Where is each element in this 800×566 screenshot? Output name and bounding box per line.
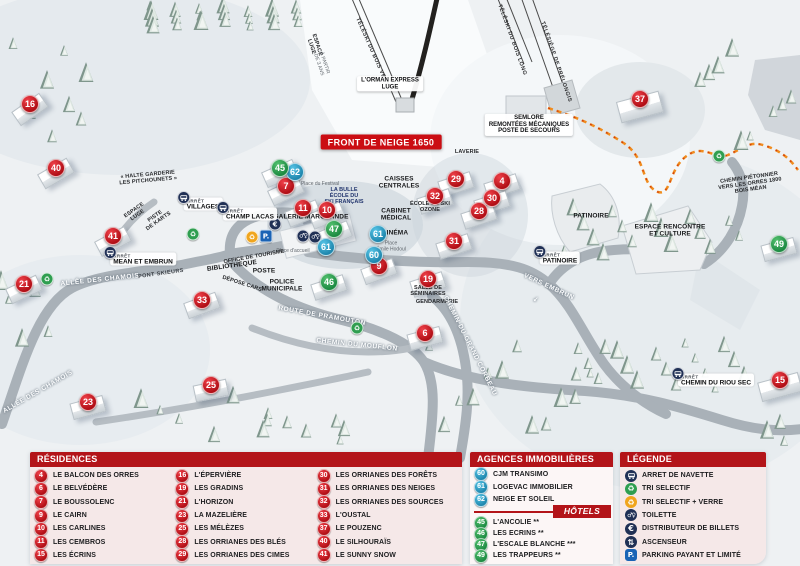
map-marker-49: 49 bbox=[770, 235, 788, 253]
map-marker-33: 33 bbox=[193, 291, 211, 309]
legend-item-label: LE CAIRN bbox=[53, 512, 87, 519]
legend-item: ⇅ASCENSEUR bbox=[625, 536, 761, 548]
map-label-chemin-pi-tonnier: CHEMIN PIÉTONNIERVERS LES ORRES 1800BOIS… bbox=[717, 170, 783, 197]
legende-panel: LÉGENDE ARRET DE NAVETTE♻TRI SELECTIF♻TR… bbox=[620, 452, 766, 564]
stop-name: CHAMP LACAS bbox=[226, 213, 274, 220]
recycle-glass-icon: ♻ bbox=[625, 496, 637, 508]
map-label-chemin-du-grand-corbeau: CHEMIN DU GRAND CORBEAU bbox=[442, 295, 499, 397]
map-marker-31: 31 bbox=[445, 232, 463, 250]
legend-item-label: LES ORRIANES DES BLÉS bbox=[194, 539, 286, 546]
legend-item: 47L'ESCALE BLANCHE *** bbox=[474, 539, 609, 550]
legende-list: ARRET DE NAVETTE♻TRI SELECTIF♻TRI SELECT… bbox=[620, 467, 766, 564]
legend-item: 31LES ORRIANES DES NEIGES bbox=[317, 482, 458, 495]
map-marker-21: 21 bbox=[15, 275, 33, 293]
toilet-icon: ♂♀ bbox=[625, 509, 637, 521]
legend-item: 45L'ANCOLIE ** bbox=[474, 517, 609, 528]
marker-badge: 10 bbox=[34, 522, 48, 536]
legend-item: 37LE POUZENC bbox=[317, 522, 458, 535]
legend-item-label: ARRET DE NAVETTE bbox=[642, 472, 713, 479]
legend-item: 21L'HORIZON bbox=[175, 496, 316, 509]
parking-icon: P. bbox=[625, 549, 637, 561]
recycle-glass-icon: ♻ bbox=[246, 231, 259, 244]
map-marker-61: 61 bbox=[369, 225, 387, 243]
residences-list: 4LE BALCON DES ORRES6LE BELVÉDÈRE7LE BOU… bbox=[30, 467, 462, 564]
map-marker-4: 4 bbox=[493, 172, 511, 190]
marker-badge: 25 bbox=[175, 522, 189, 536]
map-marker-41: 41 bbox=[104, 227, 122, 245]
legend-item-label: LES CARLINES bbox=[53, 525, 106, 532]
legend-item-label: LES GRADINS bbox=[194, 485, 243, 492]
legend-item: 4LE BALCON DES ORRES bbox=[34, 469, 175, 482]
legend-item-label: L'HORIZON bbox=[194, 499, 233, 506]
map-marker-37: 37 bbox=[631, 90, 649, 108]
marker-badge: 19 bbox=[175, 482, 189, 496]
map-label-cabinet: CABINETMÉDICAL bbox=[381, 208, 411, 223]
map-marker-11: 11 bbox=[294, 199, 312, 217]
marker-badge: 61 bbox=[474, 480, 488, 494]
map-marker-23: 23 bbox=[79, 393, 97, 411]
hotels-list: 45L'ANCOLIE **46LES ECRINS **47L'ESCALE … bbox=[470, 516, 613, 564]
legend-item-label: LES ORRIANES DES SOURCES bbox=[336, 499, 444, 506]
stop-name: VILLAGES bbox=[187, 203, 220, 210]
marker-badge: 37 bbox=[317, 522, 331, 536]
recycle-green-icon: ♻ bbox=[713, 150, 726, 163]
agences-panel: AGENCES IMMOBILIÈRES 60CJM TRANSIMO61LOG… bbox=[470, 452, 613, 564]
marker-badge: 29 bbox=[175, 548, 189, 562]
marker-badge: 62 bbox=[474, 493, 488, 507]
legend-item-label: LE BOUSSOLENC bbox=[53, 499, 115, 506]
map-marker-25: 25 bbox=[202, 376, 220, 394]
marker-badge: 21 bbox=[175, 495, 189, 509]
legend-item: 9LE CAIRN bbox=[34, 509, 175, 522]
map-label-patinoire: PATINOIRE bbox=[573, 212, 608, 219]
legend-item-label: LA MAZELIÈRE bbox=[194, 512, 247, 519]
legend-item-label: LE BALCON DES ORRES bbox=[53, 472, 139, 479]
legend-item-label: CJM TRANSIMO bbox=[493, 471, 548, 478]
legend-item-label: ASCENSEUR bbox=[642, 539, 687, 546]
agences-header: AGENCES IMMOBILIÈRES bbox=[470, 452, 613, 467]
legend-item: €DISTRIBUTEUR DE BILLETS bbox=[625, 523, 761, 535]
map-marker-16: 16 bbox=[21, 95, 39, 113]
bus-stop-mean-et-embrun: ARRÊTMEAN ET EMBRUN bbox=[110, 253, 176, 266]
legend-item: 19LES GRADINS bbox=[175, 482, 316, 495]
legend-item-label: LES ORRIANES DES FORÊTS bbox=[336, 472, 437, 479]
bus-stop-icon bbox=[104, 246, 117, 259]
map-label-caisses: CAISSESCENTRALES bbox=[379, 176, 420, 191]
legend-item: ARRET DE NAVETTE bbox=[625, 470, 761, 482]
legend-item-label: LE POUZENC bbox=[336, 525, 382, 532]
legend-item: 25LES MÉLÈZES bbox=[175, 522, 316, 535]
legend-item: 46LES ECRINS ** bbox=[474, 528, 609, 539]
map-label-vers-embrun: VERS EMBRUN bbox=[523, 272, 576, 302]
map-label-laverie: LAVERIE bbox=[455, 149, 479, 155]
map-label-partir: À PARTIRDE 3 ANS bbox=[312, 52, 330, 77]
map-label-d-pose-cars: DÉPOSE CARS bbox=[221, 275, 262, 294]
legend-item: 10LES CARLINES bbox=[34, 522, 175, 535]
map-marker-61: 61 bbox=[317, 238, 335, 256]
legend-item: 41LE SUNNY SNOW bbox=[317, 549, 458, 562]
marker-badge: 33 bbox=[317, 509, 331, 523]
map-label-espace-rencontre: ESPACE RENCONTREET CULTURE bbox=[635, 224, 706, 239]
recycle-green-icon: ♻ bbox=[351, 322, 364, 335]
legend-item-label: LE BELVÉDÈRE bbox=[53, 485, 107, 492]
marker-badge: 4 bbox=[34, 469, 48, 483]
legend-item: P.PARKING PAYANT ET LIMITÉ bbox=[625, 549, 761, 561]
legend-item-label: LE SUNNY SNOW bbox=[336, 552, 396, 559]
marker-badge: 7 bbox=[34, 495, 48, 509]
map-label-t-l-si-ge-de-pr-longis: TÉLÉSIÈGE DE PRÉLONGIS bbox=[539, 21, 572, 103]
legend-item: 6LE BELVÉDÈRE bbox=[34, 482, 175, 495]
legend-item-label: TRI SELECTIF bbox=[642, 485, 690, 492]
legend-item-label: DISTRIBUTEUR DE BILLETS bbox=[642, 525, 739, 532]
legend-item-label: LES ÉCRINS bbox=[53, 552, 96, 559]
legend-item-label: LES ORRIANES DES NEIGES bbox=[336, 485, 436, 492]
map-marker-15: 15 bbox=[771, 371, 789, 389]
legend-item: ♻TRI SELECTIF bbox=[625, 483, 761, 495]
legend-item: 11LES CEMBROS bbox=[34, 535, 175, 548]
parking-icon: P. bbox=[260, 230, 273, 243]
atm-euro-icon: € bbox=[625, 523, 637, 535]
marker-badge: 23 bbox=[175, 509, 189, 523]
marker-badge: 28 bbox=[175, 535, 189, 549]
legend-item: 15LES ÉCRINS bbox=[34, 549, 175, 562]
bus-stop-champ-lacas: ARRÊTCHAMP LACAS bbox=[223, 208, 277, 221]
marker-badge: 30 bbox=[317, 469, 331, 483]
map-label-pont-skieurs: PONT SKIEURS bbox=[138, 268, 184, 281]
legend-item-label: LES CEMBROS bbox=[53, 539, 105, 546]
marker-badge: 40 bbox=[317, 535, 331, 549]
map-label-: ↙ bbox=[533, 296, 539, 303]
map-marker-60: 60 bbox=[365, 246, 383, 264]
legend-item-label: PARKING PAYANT ET LIMITÉ bbox=[642, 552, 741, 559]
map-label-halte-garderie: « HALTE GARDERIELES PITCHOUNETS » bbox=[119, 169, 178, 186]
legend-item-label: LES ORRIANES DES CIMES bbox=[194, 552, 289, 559]
map-marker-10: 10 bbox=[318, 201, 336, 219]
marker-badge: 11 bbox=[34, 535, 48, 549]
bus-stop-icon bbox=[217, 201, 230, 214]
recycle-green-icon: ♻ bbox=[187, 228, 200, 241]
map-marker-32: 32 bbox=[426, 187, 444, 205]
marker-badge: 49 bbox=[474, 549, 488, 563]
legend-item-label: LES ECRINS ** bbox=[493, 530, 544, 537]
map-label-all-e-des-chamois: ALLÉE DES CHAMOIS bbox=[2, 369, 74, 415]
legend-item-label: L'ÉPERVIÈRE bbox=[194, 472, 241, 479]
legend-item: ♂♀TOILETTE bbox=[625, 509, 761, 521]
legend-item-label: LE SILHOURAÏS bbox=[336, 539, 391, 546]
legend-item: 29LES ORRIANES DES CIMES bbox=[175, 549, 316, 562]
map-marker-19: 19 bbox=[419, 270, 437, 288]
elevator-icon: ⇅ bbox=[625, 536, 637, 548]
map-label-front-de-neige-1650: FRONT DE NEIGE 1650 bbox=[321, 134, 442, 149]
bus-stop-patinoire: ARRÊTPATINOIRE bbox=[540, 252, 580, 265]
map-marker-6: 6 bbox=[416, 324, 434, 342]
legend-item-label: TOILETTE bbox=[642, 512, 677, 519]
marker-badge: 15 bbox=[34, 548, 48, 562]
map-label-l-orman-express: L'ORMAN EXPRESSLUGE bbox=[357, 76, 423, 91]
marker-badge: 31 bbox=[317, 482, 331, 496]
map-label-police: POLICEMUNICIPALE bbox=[262, 279, 303, 294]
legend-item: ♻TRI SELECTIF + VERRE bbox=[625, 496, 761, 508]
legend-item-label: L'OUSTAL bbox=[336, 512, 371, 519]
hotels-divider: HÔTELS bbox=[470, 507, 613, 516]
legend-item: 61LOGEVAC IMMOBILIER bbox=[474, 481, 609, 494]
residences-panel: RÉSIDENCES 4LE BALCON DES ORRES6LE BELVÉ… bbox=[30, 452, 462, 564]
legende-header: LÉGENDE bbox=[620, 452, 766, 467]
legend-item: 7LE BOUSSOLENC bbox=[34, 496, 175, 509]
legend-item-label: LES MÉLÈZES bbox=[194, 525, 244, 532]
legend-item-label: L'ESCALE BLANCHE *** bbox=[493, 541, 576, 548]
marker-badge: 6 bbox=[34, 482, 48, 496]
map-marker-29: 29 bbox=[447, 170, 465, 188]
stop-name: MEAN ET EMBRUN bbox=[113, 258, 173, 265]
marker-badge: 9 bbox=[34, 509, 48, 523]
map-label-semlore: SEMLOREREMONTÉES MÉCANIQUESPOSTE DE SECO… bbox=[485, 114, 573, 136]
map-marker-47: 47 bbox=[325, 220, 343, 238]
map-label-all-e-des-chamois: ALLÉE DES CHAMOIS bbox=[60, 272, 140, 288]
legend-item: 30LES ORRIANES DES FORÊTS bbox=[317, 469, 458, 482]
legend-item-label: TRI SELECTIF + VERRE bbox=[642, 499, 723, 506]
bus-stop-chemin-du-riou-sec: ARRÊTCHEMIN DU RIOU SEC bbox=[678, 374, 754, 387]
recycle-green-icon: ♻ bbox=[41, 273, 54, 286]
marker-badge: 32 bbox=[317, 495, 331, 509]
legend-item: 32LES ORRIANES DES SOURCES bbox=[317, 496, 458, 509]
legend-item-label: NEIGE ET SOLEIL bbox=[493, 496, 554, 503]
legend-item: 60CJM TRANSIMO bbox=[474, 468, 609, 481]
map-marker-45: 45 bbox=[271, 159, 289, 177]
legend-item: 40LE SILHOURAÏS bbox=[317, 535, 458, 548]
recycle-green-icon: ♻ bbox=[625, 483, 637, 495]
map-marker-28: 28 bbox=[470, 202, 488, 220]
stop-name: CHEMIN DU RIOU SEC bbox=[681, 379, 751, 386]
resort-map-page: LAVERIECAISSESCENTRALESCABINETMÉDICALCIN… bbox=[0, 0, 800, 566]
legend-item: 23LA MAZELIÈRE bbox=[175, 509, 316, 522]
legend-item-label: L'ANCOLIE ** bbox=[493, 519, 539, 526]
map-label-poste: POSTE bbox=[253, 267, 276, 274]
bus-stop-icon bbox=[177, 191, 190, 204]
legend-item-label: LES TRAPPEURS ** bbox=[493, 552, 561, 559]
bus-stop-icon bbox=[671, 367, 684, 380]
map-marker-40: 40 bbox=[47, 159, 65, 177]
bus-stop-icon bbox=[533, 245, 546, 258]
legend-item: 49LES TRAPPEURS ** bbox=[474, 550, 609, 561]
hotels-header: HÔTELS bbox=[553, 505, 611, 518]
map-label-galerie-marchande: GALERIE MARCHANDE bbox=[273, 213, 348, 220]
bus-stop-icon bbox=[625, 470, 637, 482]
marker-badge: 16 bbox=[175, 469, 189, 483]
legend-item: 16L'ÉPERVIÈRE bbox=[175, 469, 316, 482]
legend-item: 28LES ORRIANES DES BLÉS bbox=[175, 535, 316, 548]
marker-badge: 41 bbox=[317, 548, 331, 562]
residences-header: RÉSIDENCES bbox=[30, 452, 462, 467]
stop-name: PATINOIRE bbox=[543, 257, 577, 264]
legend-item: 33L'OUSTAL bbox=[317, 509, 458, 522]
map-label-chemin-du-mouflon: CHEMIN DU MOUFLON bbox=[316, 337, 398, 353]
map-marker-46: 46 bbox=[320, 273, 338, 291]
map-label-t-l-ski-du-bois-long: TÉLÉSKI DU BOIS LONG bbox=[496, 4, 527, 77]
agences-list: 60CJM TRANSIMO61LOGEVAC IMMOBILIER62NEIG… bbox=[470, 467, 613, 507]
legend-item-label: LOGEVAC IMMOBILIER bbox=[493, 484, 573, 491]
